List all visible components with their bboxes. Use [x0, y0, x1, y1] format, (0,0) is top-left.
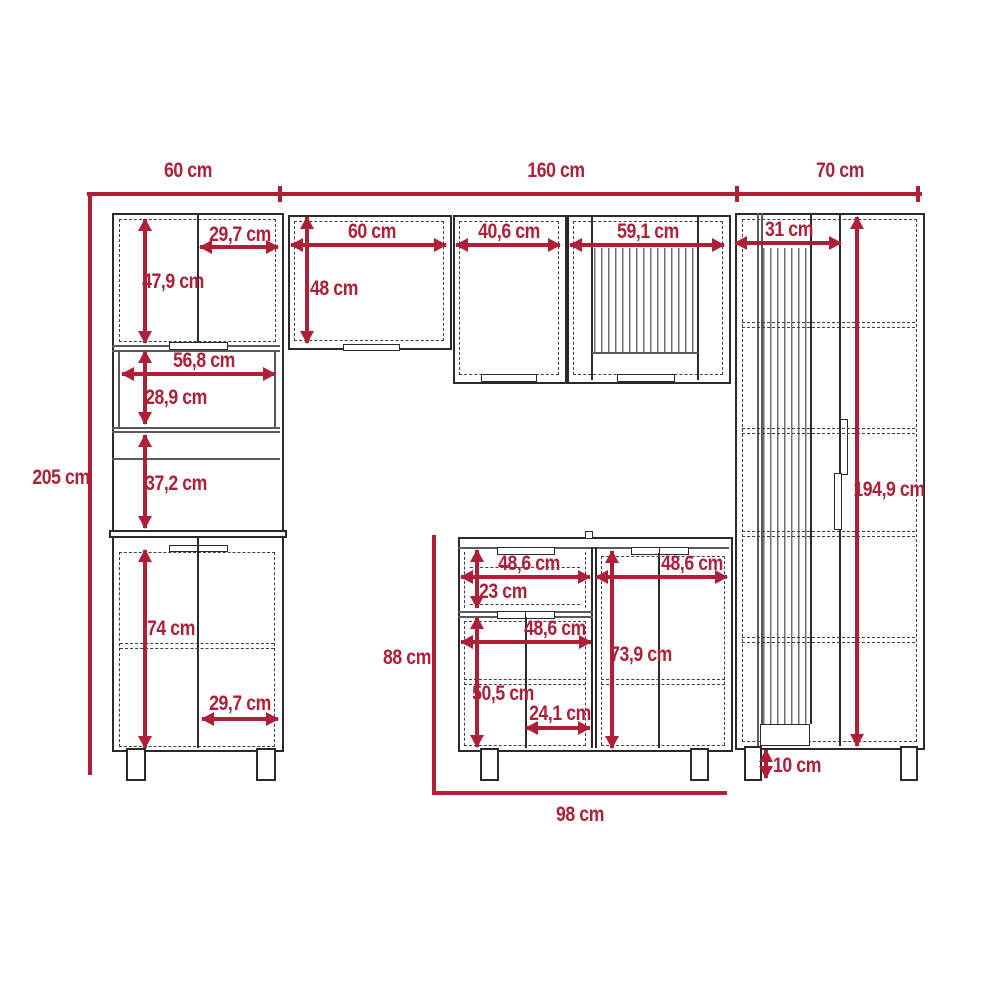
shelf-dashed-line — [742, 428, 915, 429]
tall-cab-handle — [834, 473, 842, 530]
shelf-dashed-line — [601, 684, 725, 685]
door-front-dashed — [601, 745, 725, 746]
dim-label-pantry-upper-door-height: 47,9 cm — [136, 270, 210, 294]
niche-wall — [274, 350, 276, 427]
dim-label-base-height: 88 cm — [378, 646, 435, 670]
shelf-dashed-line — [742, 642, 915, 643]
cabinet-leg — [900, 746, 918, 781]
dim-arrow-tall-leg-height — [764, 750, 768, 778]
slat-door-stile — [757, 213, 759, 746]
niche-wall — [118, 350, 120, 427]
shelf-dashed-line — [742, 637, 915, 638]
dim-label-pantry-lower-door-height: 74 cm — [142, 617, 199, 641]
dim-label-base-drawer-width: 48,6 cm — [492, 552, 566, 576]
wall-cab2-handle — [481, 374, 537, 382]
shelf-line — [112, 458, 280, 460]
dim-label-base-door-width: 24,1 cm — [523, 702, 597, 726]
shelf-dashed-line — [742, 327, 915, 328]
slat-door-edge — [810, 213, 812, 724]
drawer-front-dashed — [470, 604, 580, 605]
cabinet-leg — [690, 748, 709, 781]
slat-door-edge — [591, 215, 593, 380]
slat-door-louvers — [763, 248, 811, 724]
dim-label-base-drawer-height: 23 cm — [474, 580, 531, 604]
shelf-dashed-line — [742, 531, 915, 532]
cabinet-leg — [126, 748, 146, 781]
wall-cab3-handle — [617, 374, 675, 382]
dim-arrow-pantry-lower-door-height — [143, 550, 147, 748]
dim-label-base-lower-width: 48,6 cm — [518, 617, 592, 641]
dim-label-base-right-height: 73,9 cm — [604, 643, 678, 667]
shelf-line — [112, 427, 280, 429]
dim-label-wall-cab2-width: 40,6 cm — [472, 220, 546, 244]
shelf-dashed-line — [464, 679, 586, 680]
slat-door-rail — [592, 352, 698, 354]
dimension-tick — [916, 186, 920, 202]
base-top-notch — [585, 531, 593, 539]
dimension-tick — [278, 186, 282, 202]
shelf-dashed-line — [742, 322, 915, 323]
dim-label-tall-height: 194,9 cm — [847, 478, 932, 502]
shelf-dashed-line — [742, 433, 915, 434]
shelf-line — [112, 431, 280, 433]
shelf-dashed-line — [742, 536, 915, 537]
slat-door-louvers — [594, 248, 697, 352]
dim-label-top-middle: 160 cm — [522, 159, 590, 183]
dim-label-tall-leg-height: 10 cm — [768, 754, 825, 778]
dim-label-pantry-upper-door-width: 29,7 cm — [203, 223, 277, 247]
dim-label-total-height: 205 cm — [27, 466, 95, 490]
door-front-dashed — [601, 556, 602, 745]
cabinet-leg — [256, 748, 276, 781]
overall-dimension-line — [87, 192, 922, 196]
dim-label-base-width: 98 cm — [551, 803, 608, 827]
shelf-dashed-line — [601, 679, 725, 680]
dim-label-top-right: 70 cm — [811, 159, 868, 183]
dim-arrow-pantry-lower-door-width — [202, 717, 278, 721]
slat-door-bottom-rail — [760, 724, 810, 746]
dimension-drawing-canvas: 60 cm 160 cm 70 cm 205 cm 47,9 cm — [0, 0, 1000, 1000]
cabinet-leg — [480, 748, 499, 781]
dim-label-pantry-niche-height: 28,9 cm — [139, 386, 213, 410]
slat-door-edge — [697, 215, 699, 380]
dim-label-pantry-lower-door-width: 29,7 cm — [203, 692, 277, 716]
dim-label-wall-cab3-width: 59,1 cm — [611, 220, 685, 244]
dim-label-wall-cab1-width: 60 cm — [343, 220, 400, 244]
dim-label-base-right-width: 48,6 cm — [655, 552, 729, 576]
dim-arrow-base-door-width — [526, 726, 590, 730]
wall-cab1-handle — [343, 344, 400, 351]
door-front-dashed — [724, 556, 725, 745]
dimension-tick — [735, 186, 739, 202]
dim-label-tall-door-width: 31 cm — [760, 218, 817, 242]
dim-label-pantry-mid-height: 37,2 cm — [139, 472, 213, 496]
dim-label-wall-cab1-height: 48 cm — [305, 277, 362, 301]
dim-label-pantry-niche-width: 56,8 cm — [167, 349, 241, 373]
base-width-line — [432, 791, 727, 795]
dim-label-top-left: 60 cm — [159, 159, 216, 183]
